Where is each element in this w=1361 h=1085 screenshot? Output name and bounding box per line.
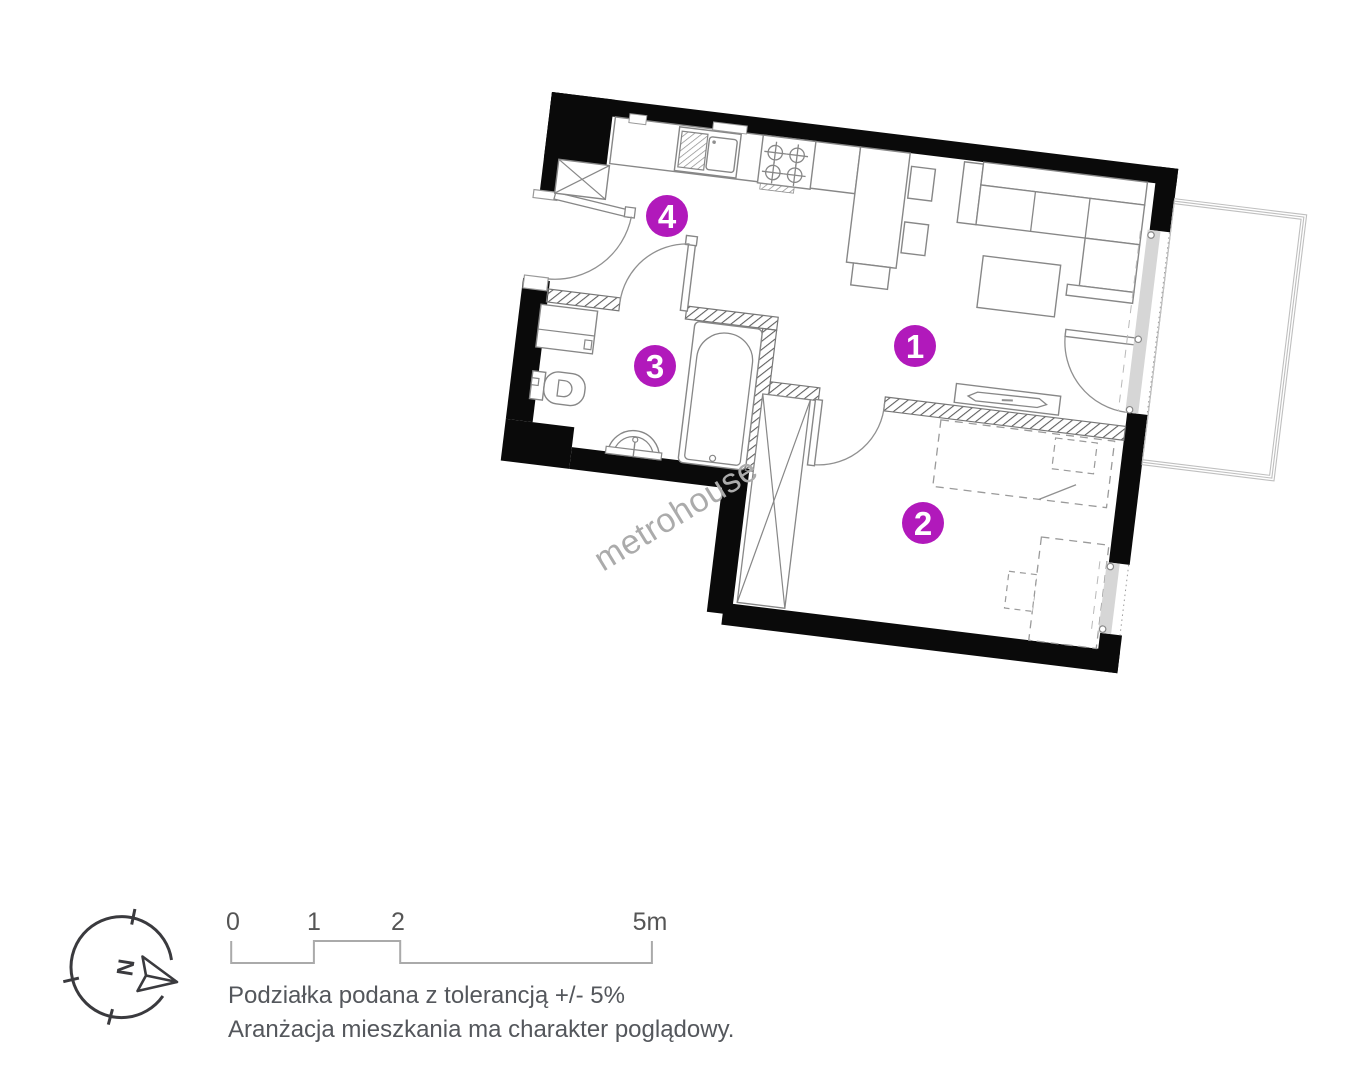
svg-text:1: 1 (307, 908, 321, 936)
svg-text:2: 2 (391, 908, 405, 936)
svg-text:0: 0 (226, 908, 240, 936)
svg-text:3: 3 (646, 348, 664, 385)
svg-text:Aranżacja mieszkania ma charak: Aranżacja mieszkania ma charakter pogląd… (228, 1016, 734, 1043)
svg-text:5m: 5m (633, 908, 668, 936)
svg-text:Podziałka podana z tolerancją: Podziałka podana z tolerancją +/- 5% (228, 982, 625, 1009)
svg-text:N: N (111, 957, 139, 977)
svg-text:2: 2 (914, 505, 932, 542)
svg-text:4: 4 (658, 198, 677, 235)
svg-text:1: 1 (906, 328, 924, 365)
